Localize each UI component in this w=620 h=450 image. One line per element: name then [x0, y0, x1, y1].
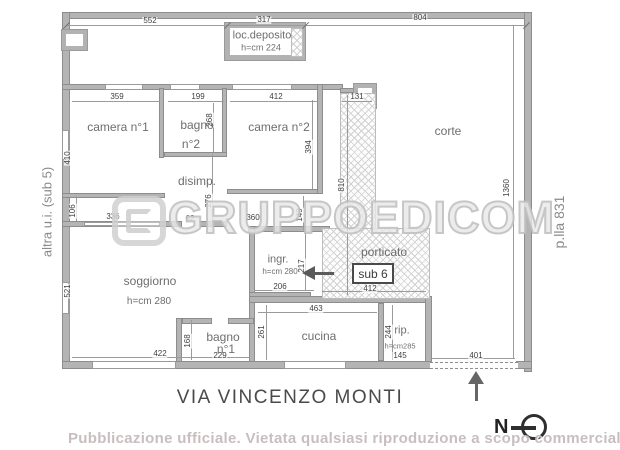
watermark-logo-icon [112, 196, 166, 246]
room-label-soggiorno: soggiorno [124, 275, 177, 287]
floor-plan: 552 317 804 359 199 412 131 410 268 394 … [0, 0, 620, 450]
dimension-label: 106 [69, 203, 77, 218]
window [92, 361, 176, 369]
dimension-label: 317 [256, 16, 271, 24]
dimension-label: 412 [362, 285, 377, 293]
sub6-box: sub 6 [352, 263, 394, 284]
dimension-label: 131 [349, 93, 364, 101]
dimension-label: 261 [258, 324, 266, 339]
wall-segment [228, 318, 254, 324]
dimension-label: 804 [412, 14, 427, 22]
room-label-camera2: camera n°2 [248, 121, 310, 133]
window [232, 84, 292, 90]
street-label: VIA VINCENZO MONTI [177, 387, 404, 409]
room-height-soggiorno: h=cm 280 [127, 297, 171, 307]
wall-segment [516, 361, 532, 369]
dimension-label: 810 [338, 177, 346, 192]
room-label-rip: rip. [394, 326, 409, 337]
wall-segment [425, 296, 432, 362]
wall-segment [164, 152, 227, 157]
window [105, 84, 143, 90]
room-label-bagno2-n: n°2 [182, 138, 200, 150]
room-label-camera1: camera n°1 [87, 121, 149, 133]
gate-arrow-icon [468, 371, 484, 384]
dim-line [230, 101, 318, 102]
room-label-bagno2: bagno [180, 119, 213, 131]
room-height-deposito: h=cm 224 [241, 44, 281, 53]
hatch-deposito [291, 28, 303, 57]
wall-segment [182, 318, 212, 324]
pillar-box [62, 30, 87, 50]
dimension-label: 401 [468, 352, 483, 360]
dimension-label: 463 [308, 305, 323, 313]
room-label-corte: corte [435, 125, 462, 137]
dimension-label: 244 [385, 324, 393, 339]
room-label-disimpegno: disimp. [178, 175, 216, 187]
dimension-label: 552 [142, 17, 157, 25]
window [170, 84, 200, 90]
dimension-label: 359 [109, 93, 124, 101]
dim-line [168, 101, 224, 102]
dimension-label: 412 [268, 93, 283, 101]
room-label-deposito: loc.deposito [233, 31, 292, 42]
window [284, 361, 346, 369]
dimension-label: 199 [190, 93, 205, 101]
dimension-label: 422 [152, 350, 167, 358]
wall-segment [222, 88, 227, 154]
room-height-ingresso: h=cm 280 [262, 268, 297, 276]
gate-dashed-opening [430, 362, 518, 369]
wall-segment [159, 88, 164, 158]
dim-line [69, 101, 70, 193]
entrance-arrow-stem [314, 272, 334, 275]
room-height-rip: h=cm285 [384, 342, 415, 350]
room-label-ingresso: ingr. [268, 255, 289, 266]
wall-segment [176, 318, 182, 362]
watermark-text: GRUPPOEDICOM [168, 195, 555, 240]
dim-line [266, 305, 267, 360]
sub6-label: sub 6 [358, 267, 387, 281]
dimension-label: 410 [64, 150, 72, 165]
entrance-arrow-icon [302, 266, 315, 280]
dimension-label: 521 [64, 283, 72, 298]
dim-line [66, 25, 527, 26]
dim-line [342, 101, 372, 102]
room-label-cucina: cucina [302, 330, 337, 342]
room-label-bagno1-n: n°1 [217, 343, 235, 355]
gate-arrow-stem [475, 383, 478, 401]
banner-text: Pubblicazione ufficiale. Vietata qualsia… [68, 430, 620, 447]
watermark-logo-glyph [126, 209, 152, 233]
wall-segment [62, 12, 532, 19]
dimension-label: 206 [272, 283, 287, 291]
room-label-porticato: porticato [361, 246, 407, 258]
dim-line [72, 101, 160, 102]
dimension-label: 394 [305, 139, 313, 154]
dimension-label: 145 [392, 352, 407, 360]
parcel-label-left: altra u.i. (sub 5) [40, 167, 55, 257]
dimension-label: 168 [184, 333, 192, 348]
